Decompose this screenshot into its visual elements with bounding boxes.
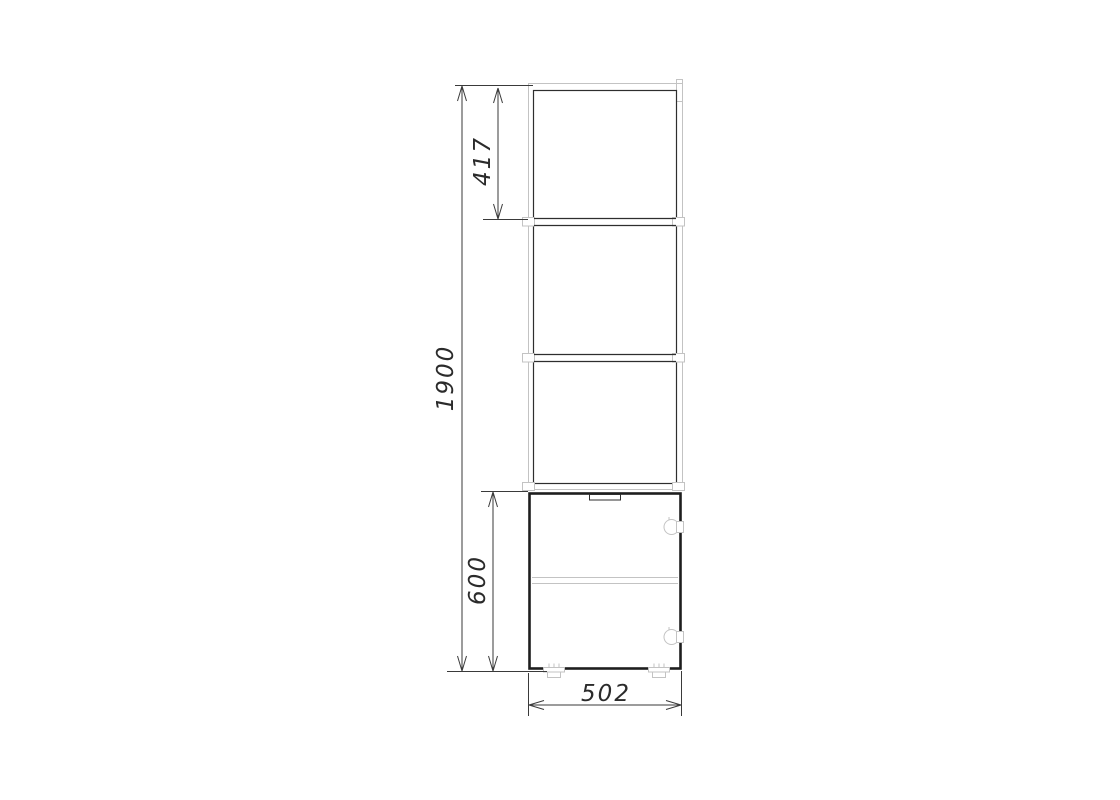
carcass-inner-lines <box>534 91 677 484</box>
upper-bottom-right-cap <box>673 483 685 491</box>
upper-bottom-left-cap <box>523 483 535 491</box>
dimension-base-cabinet: 600 <box>465 492 498 671</box>
shelf-1-left-cap <box>523 218 535 227</box>
dim-label-417: 417 <box>470 136 496 186</box>
upper-carcass-outline <box>529 84 683 490</box>
hinge-bottom-plate <box>677 632 684 643</box>
dimension-annotations: 1900 417 600 502 <box>433 86 682 717</box>
lower-door-outline <box>530 494 681 669</box>
dimension-top-section: 417 <box>470 88 503 219</box>
top-right-edge-detail <box>677 80 683 102</box>
cabinet-dimension-drawing: 1900 417 600 502 <box>0 0 1120 800</box>
dim-label-502: 502 <box>581 681 631 707</box>
dim-label-1900: 1900 <box>433 345 459 412</box>
drawing-page: 1900 417 600 502 <box>0 0 1120 800</box>
hinge-top-plate <box>677 522 684 533</box>
foot-right <box>649 664 670 678</box>
shelf-2-left-cap <box>523 354 535 363</box>
door-handle-groove <box>590 495 621 501</box>
carcass-outer-lines <box>529 80 683 490</box>
upper-carcass-inner-edges <box>534 91 677 484</box>
lower-cabinet <box>530 494 684 678</box>
dimension-overall-height: 1900 <box>433 86 467 671</box>
dimension-overall-width: 502 <box>529 681 681 710</box>
upper-cabinet <box>523 80 685 491</box>
shelf-1 <box>523 218 685 227</box>
dim-label-600: 600 <box>465 555 491 605</box>
shelf-2 <box>523 354 685 363</box>
feet <box>544 664 670 678</box>
foot-left <box>544 664 565 678</box>
